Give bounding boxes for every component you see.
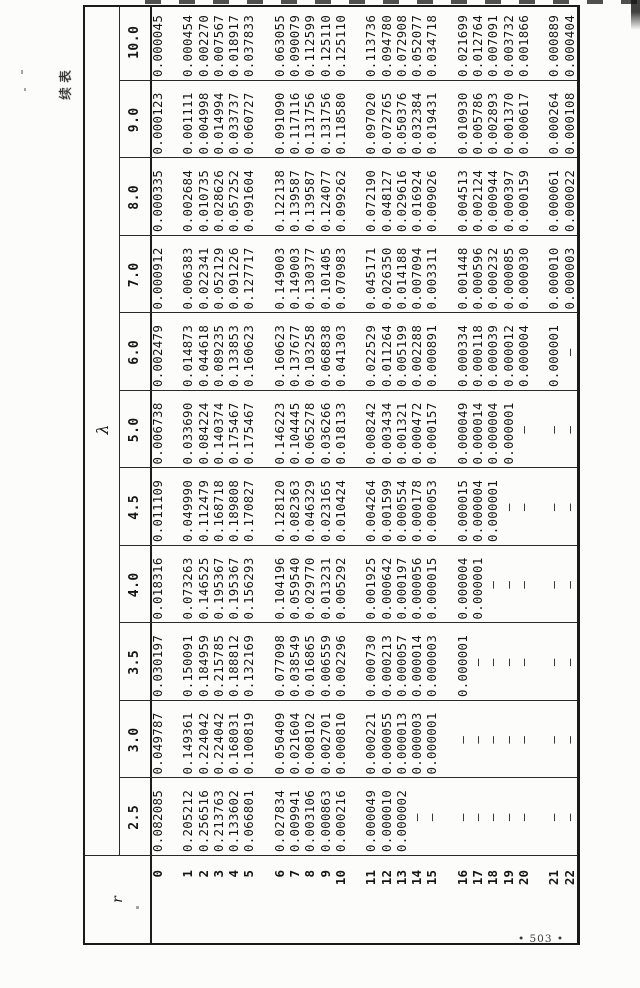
cell-lambda5.0-r22: — — [562, 391, 577, 469]
cell-lambda4.0-r21: — — [546, 546, 561, 624]
lambda-header-values: 2.53.03.54.04.55.06.07.08.09.010.0 — [119, 3, 150, 856]
cell-lambda4.5-r10: 0.010424 — [333, 469, 348, 547]
cell-lambda7.0-r3: 0.052129 — [211, 236, 226, 314]
cell-lambda9.0-r8: 0.131756 — [302, 81, 317, 159]
cell-lambda3.0-r20: — — [516, 701, 531, 779]
cell-lambda3.0-r8: 0.008102 — [302, 701, 317, 779]
cell-lambda2.5-r5: 0.066801 — [241, 779, 256, 857]
cell-lambda9.0-r5: 0.060727 — [241, 81, 256, 159]
lambda-header-9.0: 9.0 — [119, 81, 150, 159]
cell-lambda4.0-r4: 0.195367 — [226, 546, 241, 624]
cell-lambda2.5-r11: 0.000049 — [363, 779, 378, 857]
cell-lambda3.0-r15: 0.000001 — [424, 701, 439, 779]
cell-lambda5.0-r15: 0.000157 — [424, 391, 439, 469]
cell-lambda10.0-r3: 0.007567 — [211, 4, 226, 82]
lambda-header-3.0: 3.0 — [119, 701, 150, 779]
cell-lambda3.5-r13: 0.000057 — [394, 624, 409, 702]
cell-lambda3.0-r10: 0.000810 — [333, 701, 348, 779]
cell-lambda4.5-r14: 0.000178 — [409, 469, 424, 547]
cell-lambda4.0-r8: 0.029770 — [302, 546, 317, 624]
cell-lambda10.0-r14: 0.052077 — [409, 4, 424, 82]
cell-lambda8.0-r13: 0.029616 — [394, 159, 409, 237]
cell-lambda4.5-r8: 0.046329 — [302, 469, 317, 547]
cell-lambda3.0-r9: 0.002701 — [318, 701, 333, 779]
cell-lambda8.0-r21: 0.000061 — [546, 159, 561, 237]
cell-lambda10.0-r1: 0.000454 — [180, 4, 195, 82]
r-label-13: 13 — [394, 856, 409, 943]
cell-lambda8.0-r12: 0.048127 — [379, 159, 394, 237]
cell-lambda8.0-r9: 0.124077 — [318, 159, 333, 237]
cell-lambda3.0-r5: 0.100819 — [241, 701, 256, 779]
cell-lambda6.0-r16: 0.000334 — [455, 314, 470, 392]
cell-lambda9.0-r22: 0.000108 — [562, 81, 577, 159]
cell-lambda10.0-r0: 0.000045 — [150, 4, 165, 82]
cell-lambda7.0-r13: 0.014188 — [394, 236, 409, 314]
cell-lambda4.5-r7: 0.082363 — [287, 469, 302, 547]
cell-lambda9.0-r9: 0.131756 — [318, 81, 333, 159]
cell-lambda10.0-r15: 0.034718 — [424, 4, 439, 82]
lambda-header-7.0: 7.0 — [119, 236, 150, 314]
cell-lambda3.0-r4: 0.168031 — [226, 701, 241, 779]
cell-lambda2.5-r19: — — [501, 779, 516, 857]
table-row-r1: 10.2052120.1493610.1500910.0732630.04999… — [180, 7, 195, 943]
cell-lambda2.5-r3: 0.213763 — [211, 779, 226, 857]
table-row-r10: 100.0002160.0008100.0022960.0052920.0104… — [333, 7, 348, 943]
cell-lambda7.0-r16: 0.001448 — [455, 236, 470, 314]
table-row-r7: 70.0099410.0216040.0385490.0595400.08236… — [287, 7, 302, 943]
row-group-gap — [165, 7, 180, 943]
cell-lambda3.5-r11: 0.000730 — [363, 624, 378, 702]
cell-lambda2.5-r15: — — [424, 779, 439, 857]
cell-lambda8.0-r1: 0.002684 — [180, 159, 195, 237]
cell-lambda3.5-r16: 0.000001 — [455, 624, 470, 702]
cell-lambda10.0-r19: 0.003732 — [501, 4, 516, 82]
cell-lambda2.5-r12: 0.000010 — [379, 779, 394, 857]
table-row-r8: 80.0031060.0081020.0168650.0297700.04632… — [302, 7, 317, 943]
cell-lambda8.0-r14: 0.016924 — [409, 159, 424, 237]
cell-lambda8.0-r4: 0.057252 — [226, 159, 241, 237]
cell-lambda10.0-r9: 0.125110 — [318, 4, 333, 82]
cell-lambda5.0-r20: — — [516, 391, 531, 469]
cell-lambda6.0-r10: 0.041303 — [333, 314, 348, 392]
cell-lambda9.0-r16: 0.010930 — [455, 81, 470, 159]
cell-lambda5.0-r21: — — [546, 391, 561, 469]
lambda-header-4.5: 4.5 — [119, 469, 150, 547]
cell-lambda9.0-r13: 0.050376 — [394, 81, 409, 159]
cell-lambda5.0-r17: 0.000014 — [470, 391, 485, 469]
cell-lambda4.0-r20: — — [516, 546, 531, 624]
cell-lambda4.0-r13: 0.000197 — [394, 546, 409, 624]
r-label-14: 14 — [409, 856, 424, 943]
cell-lambda4.5-r5: 0.170827 — [241, 469, 256, 547]
cell-lambda8.0-r22: 0.000022 — [562, 159, 577, 237]
cell-lambda3.5-r7: 0.038549 — [287, 624, 302, 702]
table-row-r11: 110.0000490.0002210.0007300.0019250.0042… — [363, 7, 378, 943]
lambda-header-8.0: 8.0 — [119, 159, 150, 237]
cell-lambda8.0-r0: 0.000335 — [150, 159, 165, 237]
cell-lambda4.5-r4: 0.189808 — [226, 469, 241, 547]
scanned-page: 续表 r λ 2.53.03.54.04.55.06.07.08.09.010.… — [0, 0, 640, 988]
cell-lambda6.0-r6: 0.160623 — [272, 314, 287, 392]
cell-lambda2.5-r4: 0.133602 — [226, 779, 241, 857]
cell-lambda7.0-r15: 0.003311 — [424, 236, 439, 314]
cell-lambda8.0-r18: 0.000944 — [485, 159, 500, 237]
cell-lambda6.0-r3: 0.089235 — [211, 314, 226, 392]
cell-lambda4.5-r20: — — [516, 469, 531, 547]
cell-lambda3.0-r2: 0.224042 — [196, 701, 211, 779]
table-row-r13: 130.0000020.0000130.0000570.0001970.0005… — [394, 7, 409, 943]
lambda-header-6.0: 6.0 — [119, 314, 150, 392]
cell-lambda5.0-r2: 0.084224 — [196, 391, 211, 469]
cell-lambda2.5-r17: — — [470, 779, 485, 857]
cell-lambda3.0-r12: 0.000055 — [379, 701, 394, 779]
cell-lambda4.5-r19: — — [501, 469, 516, 547]
cell-lambda3.5-r22: — — [562, 624, 577, 702]
cell-lambda10.0-r17: 0.012764 — [470, 4, 485, 82]
table-row-r6: 60.0278340.0504090.0770980.1041960.12812… — [272, 7, 287, 943]
cell-lambda8.0-r20: 0.000159 — [516, 159, 531, 237]
table-continued-label: 续表 — [55, 5, 74, 100]
cell-lambda6.0-r1: 0.014873 — [180, 314, 195, 392]
r-label-2: 2 — [196, 856, 211, 943]
lambda-header-10.0: 10.0 — [119, 4, 150, 82]
cell-lambda7.0-r14: 0.007094 — [409, 236, 424, 314]
cell-lambda5.0-r3: 0.140374 — [211, 391, 226, 469]
table-body: 00.0820850.0497870.0301970.0183160.01110… — [150, 7, 577, 943]
cell-lambda3.0-r17: — — [470, 701, 485, 779]
cell-lambda3.0-r11: 0.000221 — [363, 701, 378, 779]
cell-lambda10.0-r6: 0.063055 — [272, 4, 287, 82]
cell-lambda2.5-r0: 0.082085 — [150, 779, 165, 857]
cell-lambda10.0-r18: 0.007091 — [485, 4, 500, 82]
r-label-12: 12 — [379, 856, 394, 943]
cell-lambda9.0-r20: 0.000617 — [516, 81, 531, 159]
cell-lambda3.0-r16: — — [455, 701, 470, 779]
cell-lambda4.0-r7: 0.059540 — [287, 546, 302, 624]
cell-lambda9.0-r18: 0.002893 — [485, 81, 500, 159]
cell-lambda10.0-r8: 0.112599 — [302, 4, 317, 82]
cell-lambda5.0-r13: 0.001321 — [394, 391, 409, 469]
cell-lambda8.0-r2: 0.010735 — [196, 159, 211, 237]
r-label-11: 11 — [363, 856, 378, 943]
cell-lambda4.5-r15: 0.000053 — [424, 469, 439, 547]
cell-lambda8.0-r15: 0.009026 — [424, 159, 439, 237]
cell-lambda10.0-r20: 0.001866 — [516, 4, 531, 82]
cell-lambda2.5-r21: — — [546, 779, 561, 857]
cell-lambda10.0-r22: 0.000404 — [562, 4, 577, 82]
cell-lambda4.0-r14: 0.000056 — [409, 546, 424, 624]
cell-lambda7.0-r10: 0.070983 — [333, 236, 348, 314]
cell-lambda8.0-r19: 0.000397 — [501, 159, 516, 237]
cell-lambda6.0-r19: 0.000012 — [501, 314, 516, 392]
r-label-7: 7 — [287, 856, 302, 943]
cell-lambda6.0-r20: 0.000004 — [516, 314, 531, 392]
cell-lambda10.0-r7: 0.090079 — [287, 4, 302, 82]
cell-lambda4.0-r0: 0.018316 — [150, 546, 165, 624]
table-row-r5: 50.0668010.1008190.1321690.1562930.17082… — [241, 7, 256, 943]
r-label-16: 16 — [455, 856, 470, 943]
cell-lambda10.0-r2: 0.002270 — [196, 4, 211, 82]
cell-lambda9.0-r3: 0.014994 — [211, 81, 226, 159]
cell-lambda4.5-r18: 0.000001 — [485, 469, 500, 547]
cell-lambda6.0-r15: 0.000891 — [424, 314, 439, 392]
cell-lambda5.0-r5: 0.175467 — [241, 391, 256, 469]
cell-lambda3.5-r21: — — [546, 624, 561, 702]
cell-lambda10.0-r10: 0.125110 — [333, 4, 348, 82]
r-label-4: 4 — [226, 856, 241, 943]
cell-lambda3.0-r13: 0.000013 — [394, 701, 409, 779]
cell-lambda7.0-r2: 0.022341 — [196, 236, 211, 314]
cell-lambda4.5-r12: 0.001599 — [379, 469, 394, 547]
cell-lambda4.5-r11: 0.004264 — [363, 469, 378, 547]
cell-lambda3.5-r6: 0.077098 — [272, 624, 287, 702]
cell-lambda3.5-r9: 0.006559 — [318, 624, 333, 702]
cell-lambda5.0-r10: 0.018133 — [333, 391, 348, 469]
table-row-r4: 40.1336020.1680310.1888120.1953670.18980… — [226, 7, 241, 943]
r-label-15: 15 — [424, 856, 439, 943]
cell-lambda5.0-r12: 0.003434 — [379, 391, 394, 469]
scan-edge-artifact-corner — [631, 0, 640, 30]
cell-lambda6.0-r8: 0.103258 — [302, 314, 317, 392]
cell-lambda7.0-r6: 0.149003 — [272, 236, 287, 314]
cell-lambda3.5-r17: — — [470, 624, 485, 702]
cell-lambda7.0-r12: 0.026350 — [379, 236, 394, 314]
table-row-r2: 20.2565160.2240420.1849590.1465250.11247… — [196, 7, 211, 943]
cell-lambda6.0-r18: 0.000039 — [485, 314, 500, 392]
cell-lambda5.0-r18: 0.000004 — [485, 391, 500, 469]
cell-lambda5.0-r6: 0.146223 — [272, 391, 287, 469]
cell-lambda3.5-r19: — — [501, 624, 516, 702]
r-label-20: 20 — [516, 856, 531, 943]
cell-lambda4.5-r3: 0.168718 — [211, 469, 226, 547]
table-row-r15: 15—0.0000010.0000030.0000150.0000530.000… — [424, 7, 439, 943]
cell-lambda5.0-r7: 0.104445 — [287, 391, 302, 469]
cell-lambda2.5-r7: 0.009941 — [287, 779, 302, 857]
cell-lambda7.0-r18: 0.000232 — [485, 236, 500, 314]
lambda-header-3.5: 3.5 — [119, 624, 150, 702]
r-label-8: 8 — [302, 856, 317, 943]
cell-lambda8.0-r16: 0.004513 — [455, 159, 470, 237]
cell-lambda7.0-r9: 0.101405 — [318, 236, 333, 314]
cell-lambda4.5-r6: 0.128120 — [272, 469, 287, 547]
cell-lambda8.0-r8: 0.139587 — [302, 159, 317, 237]
cell-lambda7.0-r21: 0.000010 — [546, 236, 561, 314]
cell-lambda6.0-r11: 0.022529 — [363, 314, 378, 392]
cell-lambda3.5-r15: 0.000003 — [424, 624, 439, 702]
cell-lambda3.5-r20: — — [516, 624, 531, 702]
cell-lambda8.0-r10: 0.099262 — [333, 159, 348, 237]
table-row-r12: 120.0000100.0000550.0002130.0006420.0015… — [379, 7, 394, 943]
cell-lambda3.5-r12: 0.000213 — [379, 624, 394, 702]
cell-lambda9.0-r0: 0.000123 — [150, 81, 165, 159]
cell-lambda2.5-r13: 0.000002 — [394, 779, 409, 857]
cell-lambda4.0-r9: 0.013231 — [318, 546, 333, 624]
lambda-header-5.0: 5.0 — [119, 391, 150, 469]
r-label-1: 1 — [180, 856, 195, 943]
cell-lambda8.0-r6: 0.122138 — [272, 159, 287, 237]
cell-lambda9.0-r10: 0.118580 — [333, 81, 348, 159]
cell-lambda9.0-r19: 0.001370 — [501, 81, 516, 159]
cell-lambda7.0-r17: 0.000596 — [470, 236, 485, 314]
cell-lambda3.0-r19: — — [501, 701, 516, 779]
cell-lambda4.0-r17: 0.000001 — [470, 546, 485, 624]
cell-lambda2.5-r18: — — [485, 779, 500, 857]
cell-lambda10.0-r16: 0.021699 — [455, 4, 470, 82]
cell-lambda6.0-r5: 0.160623 — [241, 314, 256, 392]
cell-lambda6.0-r17: 0.000118 — [470, 314, 485, 392]
cell-lambda8.0-r5: 0.091604 — [241, 159, 256, 237]
cell-lambda9.0-r6: 0.091090 — [272, 81, 287, 159]
cell-lambda4.5-r17: 0.000004 — [470, 469, 485, 547]
cell-lambda10.0-r5: 0.037833 — [241, 4, 256, 82]
cell-lambda5.0-r14: 0.000472 — [409, 391, 424, 469]
table-row-r3: 30.2137630.2240420.2157850.1953670.16871… — [211, 7, 226, 943]
cell-lambda5.0-r1: 0.033690 — [180, 391, 195, 469]
scan-speck — [24, 88, 26, 91]
cell-lambda2.5-r9: 0.000863 — [318, 779, 333, 857]
cell-lambda3.0-r18: — — [485, 701, 500, 779]
r-label-22: 22 — [562, 856, 577, 943]
cell-lambda4.0-r10: 0.005292 — [333, 546, 348, 624]
table-row-r17: 17———0.0000010.0000040.0000140.0001180.0… — [470, 7, 485, 943]
cell-lambda6.0-r2: 0.044618 — [196, 314, 211, 392]
cell-lambda9.0-r14: 0.032384 — [409, 81, 424, 159]
cell-lambda9.0-r15: 0.019431 — [424, 81, 439, 159]
cell-lambda3.5-r18: — — [485, 624, 500, 702]
rotated-table-area: 续表 r λ 2.53.03.54.04.55.06.07.08.09.010.… — [83, 5, 580, 945]
cell-lambda4.5-r21: — — [546, 469, 561, 547]
corner-header-r: r — [85, 856, 150, 943]
cell-lambda3.5-r1: 0.150091 — [180, 624, 195, 702]
cell-lambda5.0-r19: 0.000001 — [501, 391, 516, 469]
cell-lambda9.0-r7: 0.117116 — [287, 81, 302, 159]
table-row-r18: 18————0.0000010.0000040.0000390.0002320.… — [485, 7, 500, 943]
poisson-table: r λ 2.53.03.54.04.55.06.07.08.09.010.0 0… — [83, 5, 580, 945]
cell-lambda4.5-r9: 0.023165 — [318, 469, 333, 547]
cell-lambda7.0-r11: 0.045171 — [363, 236, 378, 314]
cell-lambda3.0-r22: — — [562, 701, 577, 779]
cell-lambda4.0-r19: — — [501, 546, 516, 624]
cell-lambda8.0-r3: 0.028626 — [211, 159, 226, 237]
scan-speck — [21, 70, 23, 74]
r-label-0: 0 — [150, 856, 165, 943]
cell-lambda2.5-r2: 0.256516 — [196, 779, 211, 857]
cell-lambda6.0-r14: 0.002288 — [409, 314, 424, 392]
table-row-r19: 19—————0.0000010.0000120.0000850.0003970… — [501, 7, 516, 943]
lambda-header-2.5: 2.5 — [119, 779, 150, 857]
cell-lambda3.5-r4: 0.188812 — [226, 624, 241, 702]
r-label-21: 21 — [546, 856, 561, 943]
cell-lambda9.0-r4: 0.033737 — [226, 81, 241, 159]
cell-lambda9.0-r11: 0.097020 — [363, 81, 378, 159]
cell-lambda4.0-r18: — — [485, 546, 500, 624]
row-group-gap — [257, 7, 272, 943]
cell-lambda10.0-r21: 0.000889 — [546, 4, 561, 82]
cell-lambda5.0-r9: 0.036266 — [318, 391, 333, 469]
cell-lambda7.0-r7: 0.149003 — [287, 236, 302, 314]
cell-lambda9.0-r12: 0.072765 — [379, 81, 394, 159]
table-row-r9: 90.0008630.0027010.0065590.0132310.02316… — [318, 7, 333, 943]
cell-lambda7.0-r22: 0.000003 — [562, 236, 577, 314]
cell-lambda3.0-r14: 0.000003 — [409, 701, 424, 779]
cell-lambda3.5-r0: 0.030197 — [150, 624, 165, 702]
cell-lambda2.5-r16: — — [455, 779, 470, 857]
cell-lambda9.0-r1: 0.001111 — [180, 81, 195, 159]
cell-lambda2.5-r10: 0.000216 — [333, 779, 348, 857]
cell-lambda3.0-r3: 0.224042 — [211, 701, 226, 779]
cell-lambda3.0-r21: — — [546, 701, 561, 779]
r-label-19: 19 — [501, 856, 516, 943]
cell-lambda3.0-r0: 0.049787 — [150, 701, 165, 779]
table-row-r20: 20——————0.0000040.0000300.0001590.000617… — [516, 7, 531, 943]
cell-lambda9.0-r17: 0.005786 — [470, 81, 485, 159]
r-label-9: 9 — [318, 856, 333, 943]
cell-lambda7.0-r0: 0.000912 — [150, 236, 165, 314]
cell-lambda4.0-r6: 0.104196 — [272, 546, 287, 624]
cell-lambda3.5-r5: 0.132169 — [241, 624, 256, 702]
lambda-spanning-header: λ — [85, 3, 119, 856]
cell-lambda3.5-r3: 0.215785 — [211, 624, 226, 702]
table-row-r21: 21——————0.0000010.0000100.0000610.000264… — [546, 7, 561, 943]
table-row-r22: 22———————0.0000030.0000220.0001080.00040… — [562, 7, 577, 943]
r-label-5: 5 — [241, 856, 256, 943]
cell-lambda4.0-r22: — — [562, 546, 577, 624]
cell-lambda4.5-r0: 0.011109 — [150, 469, 165, 547]
cell-lambda2.5-r6: 0.027834 — [272, 779, 287, 857]
cell-lambda3.5-r8: 0.016865 — [302, 624, 317, 702]
cell-lambda4.0-r2: 0.146525 — [196, 546, 211, 624]
cell-lambda6.0-r7: 0.137677 — [287, 314, 302, 392]
cell-lambda2.5-r20: — — [516, 779, 531, 857]
cell-lambda4.5-r1: 0.049990 — [180, 469, 195, 547]
r-label-17: 17 — [470, 856, 485, 943]
cell-lambda6.0-r0: 0.002479 — [150, 314, 165, 392]
cell-lambda4.5-r22: — — [562, 469, 577, 547]
lambda-header-4.0: 4.0 — [119, 546, 150, 624]
cell-lambda9.0-r2: 0.004998 — [196, 81, 211, 159]
table-row-r16: 16——0.0000010.0000040.0000150.0000490.00… — [455, 7, 470, 943]
cell-lambda10.0-r13: 0.072908 — [394, 4, 409, 82]
cell-lambda6.0-r22: — — [562, 314, 577, 392]
cell-lambda3.5-r10: 0.002296 — [333, 624, 348, 702]
cell-lambda6.0-r12: 0.011264 — [379, 314, 394, 392]
cell-lambda10.0-r4: 0.018917 — [226, 4, 241, 82]
cell-lambda10.0-r12: 0.094780 — [379, 4, 394, 82]
cell-lambda4.5-r13: 0.000554 — [394, 469, 409, 547]
cell-lambda3.5-r14: 0.000014 — [409, 624, 424, 702]
row-group-gap — [440, 7, 455, 943]
cell-lambda4.0-r11: 0.001925 — [363, 546, 378, 624]
r-label-3: 3 — [211, 856, 226, 943]
cell-lambda6.0-r13: 0.005199 — [394, 314, 409, 392]
cell-lambda4.0-r15: 0.000015 — [424, 546, 439, 624]
cell-lambda2.5-r14: — — [409, 779, 424, 857]
cell-lambda4.0-r3: 0.195367 — [211, 546, 226, 624]
cell-lambda2.5-r1: 0.205212 — [180, 779, 195, 857]
cell-lambda3.0-r1: 0.149361 — [180, 701, 195, 779]
page-number: • 503 • — [512, 933, 570, 945]
cell-lambda7.0-r20: 0.000030 — [516, 236, 531, 314]
cell-lambda5.0-r8: 0.065278 — [302, 391, 317, 469]
cell-lambda3.0-r6: 0.050409 — [272, 701, 287, 779]
r-label-18: 18 — [485, 856, 500, 943]
cell-lambda7.0-r1: 0.006383 — [180, 236, 195, 314]
cell-lambda6.0-r21: 0.000001 — [546, 314, 561, 392]
cell-lambda5.0-r0: 0.006738 — [150, 391, 165, 469]
r-label-6: 6 — [272, 856, 287, 943]
cell-lambda10.0-r11: 0.113736 — [363, 4, 378, 82]
cell-lambda2.5-r22: — — [562, 779, 577, 857]
